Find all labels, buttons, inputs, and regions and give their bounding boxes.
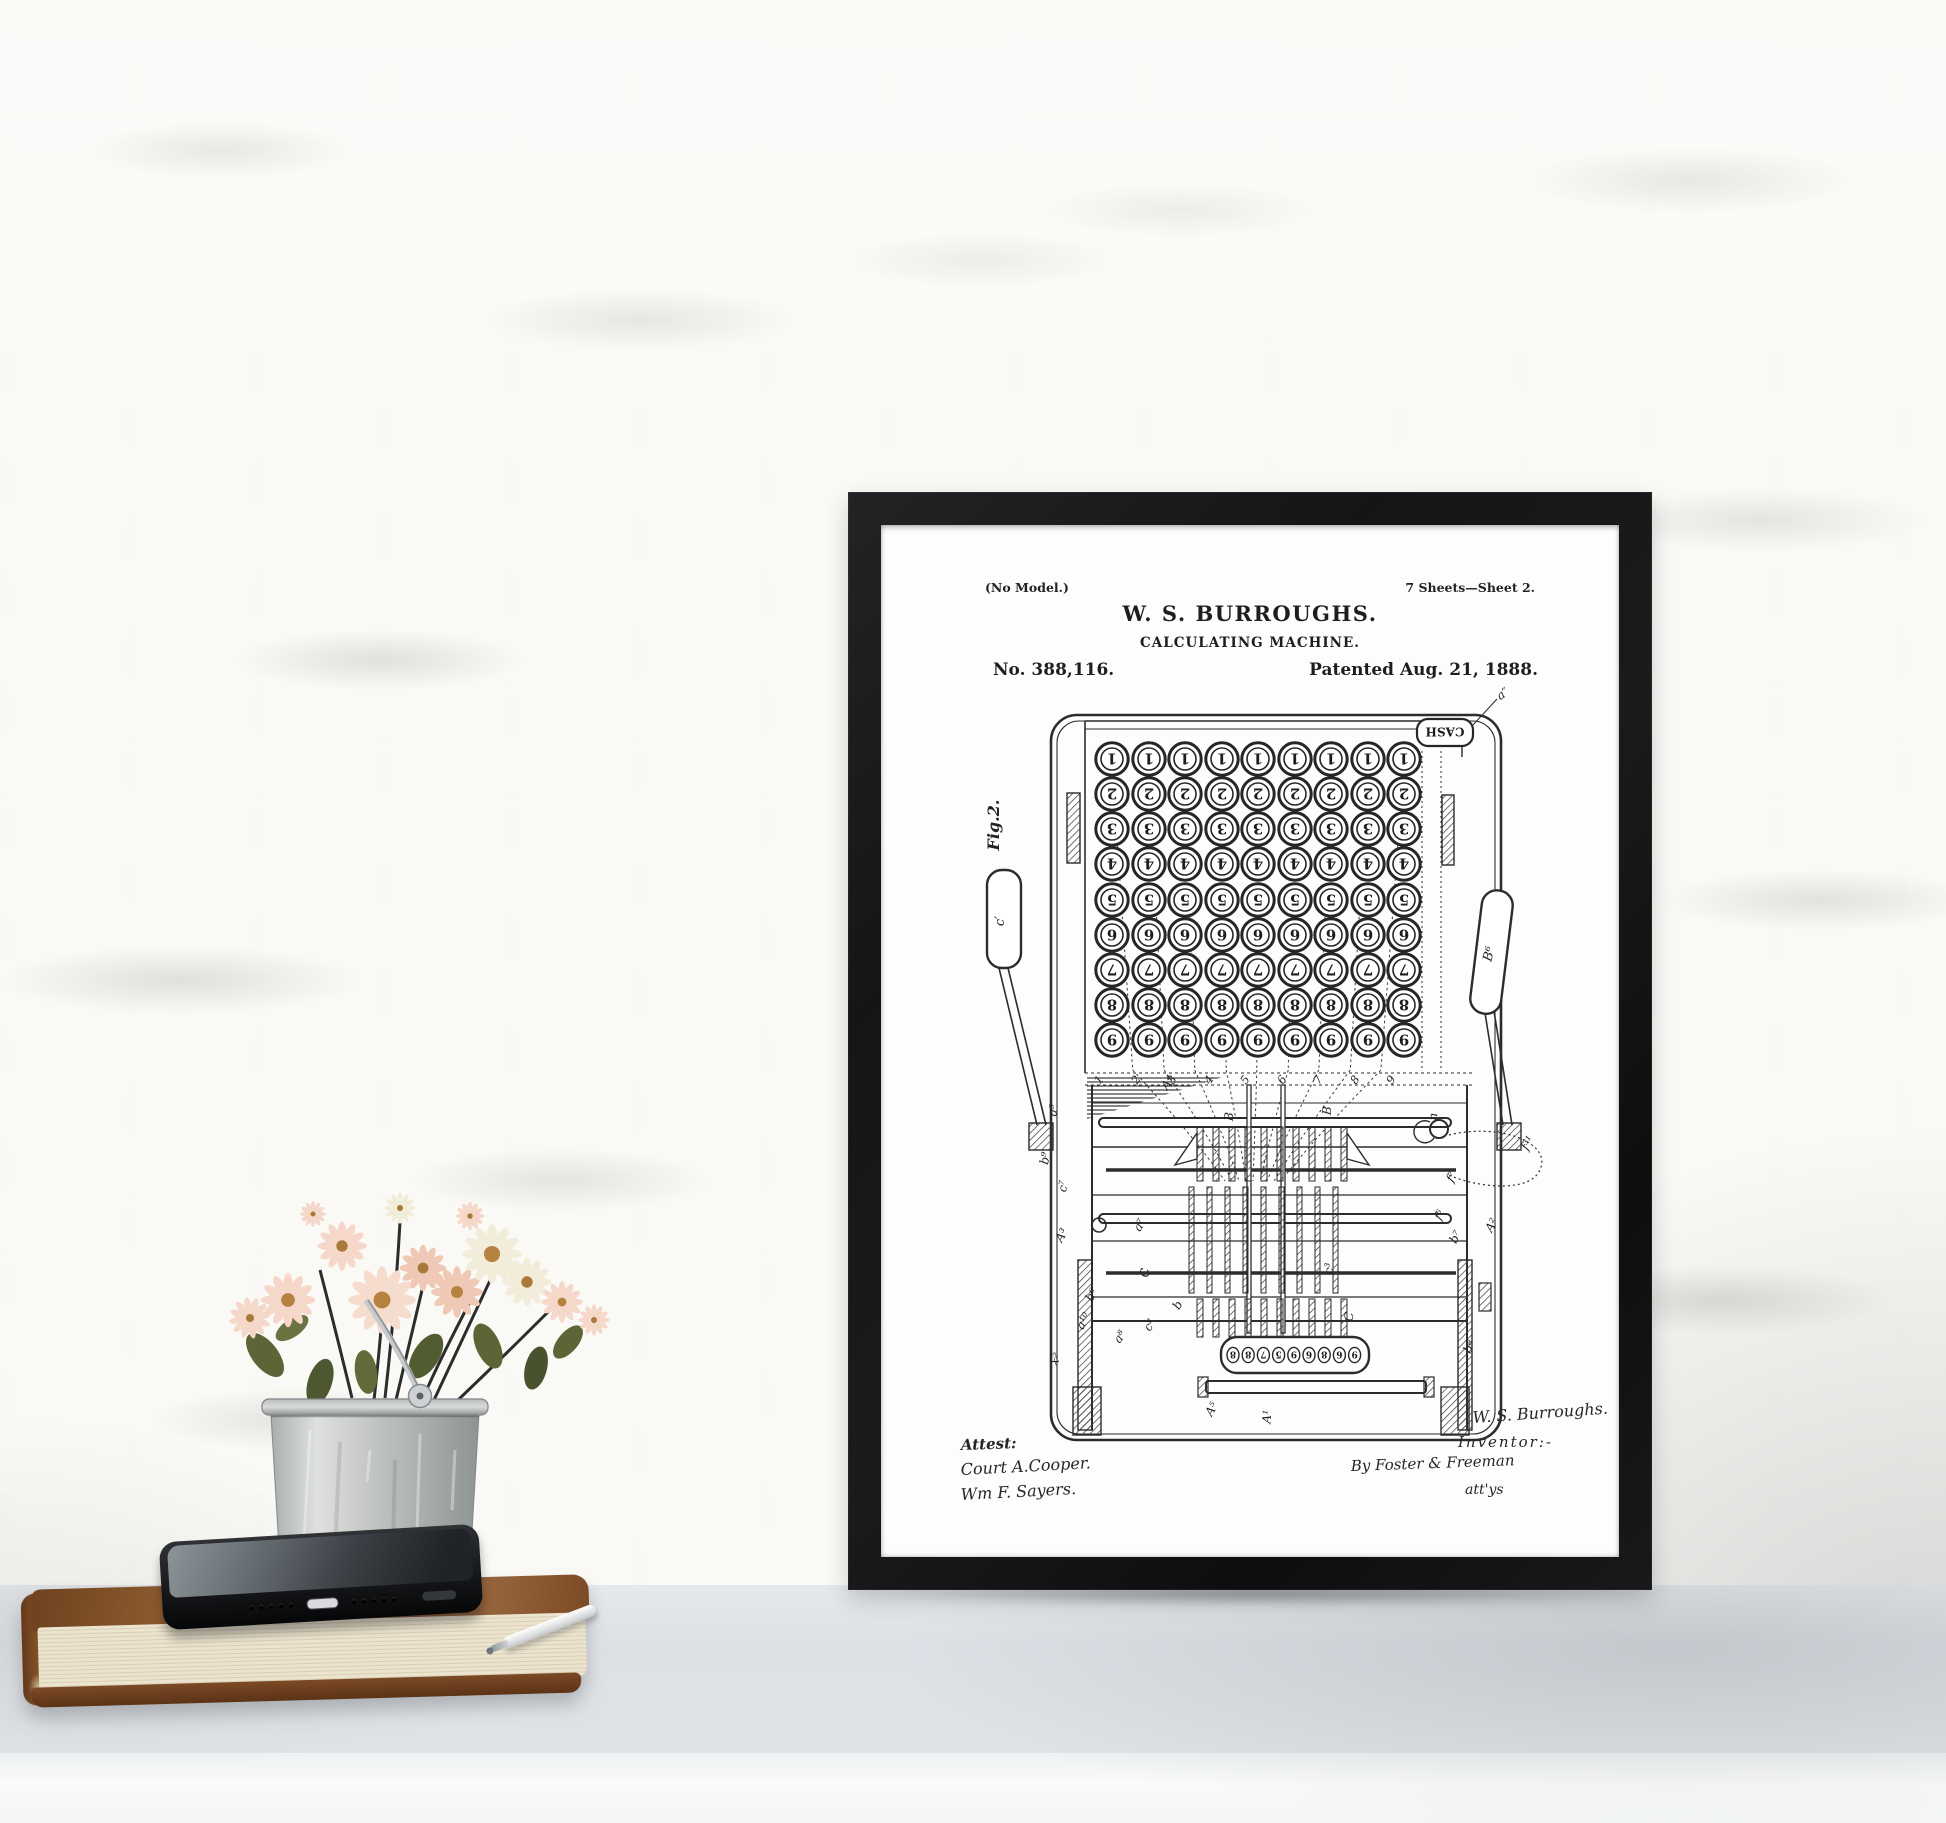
daisy-flowers: [223, 1192, 609, 1344]
key-digit: 2: [1217, 785, 1227, 803]
inventor-label: Inventor:-: [1457, 1433, 1553, 1451]
key-digit: 5: [1399, 891, 1409, 909]
key-digit: 2: [1399, 785, 1409, 803]
key-digit: 1: [1326, 750, 1336, 768]
key-digit: 4: [1363, 855, 1373, 873]
key-digit: 6: [1217, 926, 1227, 944]
key-digit: 6: [1107, 926, 1117, 944]
sheet-info: 7 Sheets—Sheet 2.: [1405, 580, 1535, 595]
key-digit: 7: [1399, 961, 1409, 979]
attorney-signature: By Foster & Freeman: [1350, 1451, 1515, 1475]
part-label: B: [1320, 1105, 1335, 1116]
comb-bar: [1309, 1127, 1315, 1181]
key-digit: 5: [1363, 891, 1373, 909]
picture-frame: (No Model.) 7 Sheets—Sheet 2. W. S. BURR…: [848, 492, 1652, 1590]
speaker-hole: [381, 1597, 386, 1602]
key-digit: 5: [1217, 891, 1227, 909]
key-digit: 5: [1326, 891, 1336, 909]
key-digit: 8: [1399, 996, 1409, 1014]
key-digit: 7: [1253, 961, 1263, 979]
left-foot: [1073, 1387, 1101, 1435]
key-digit: 9: [1363, 1031, 1373, 1049]
register-digit: 5: [1275, 1349, 1281, 1359]
part-label: B: [1222, 1111, 1237, 1122]
cash-label: CASH: [1426, 725, 1465, 739]
key-digit: 1: [1290, 750, 1300, 768]
comb-bar: [1333, 1187, 1338, 1293]
part-label: c³: [1322, 1262, 1337, 1275]
witness-signature-1: Court A.Cooper.: [960, 1453, 1091, 1479]
key-digit: 8: [1180, 996, 1190, 1014]
comb-bar: [1213, 1299, 1219, 1337]
patent-drawing: (No Model.) 7 Sheets—Sheet 2. W. S. BURR…: [881, 525, 1619, 1557]
key-digit: 2: [1180, 785, 1190, 803]
key-digit: 6: [1399, 926, 1409, 944]
key-digit: 6: [1290, 926, 1300, 944]
key-digit: 6: [1326, 926, 1336, 944]
part-label: a⁹: [1045, 1103, 1061, 1117]
register-digit: 9: [1351, 1349, 1357, 1359]
speaker-hole: [371, 1597, 376, 1602]
charging-port: [306, 1597, 339, 1610]
comb-bar: [1279, 1187, 1284, 1293]
part-label: A²: [1482, 1216, 1501, 1236]
comb-bar: [1309, 1299, 1315, 1337]
speaker-hole: [268, 1603, 273, 1608]
key-digit: 9: [1217, 1031, 1227, 1049]
key-digit: 4: [1399, 855, 1409, 873]
comb-bar: [1261, 1299, 1267, 1337]
comb-bar: [1315, 1187, 1320, 1293]
key-digit: 1: [1144, 750, 1154, 768]
register-digit: 6: [1336, 1349, 1342, 1359]
key-digit: 9: [1144, 1031, 1154, 1049]
key-digit: 4: [1290, 855, 1300, 873]
left-side-bracket: [1067, 793, 1080, 863]
register-digit: 8: [1245, 1349, 1251, 1359]
speaker-hole: [351, 1598, 356, 1603]
key-digit: 8: [1253, 996, 1263, 1014]
comb-bar: [1325, 1127, 1331, 1181]
left-lever-label: c′: [993, 916, 1008, 926]
part-label: C: [1342, 1311, 1357, 1321]
key-digit: 5: [1144, 891, 1154, 909]
key-digit: 4: [1253, 855, 1263, 873]
key-digit: 8: [1144, 996, 1154, 1014]
hatched-wedge: [1087, 1075, 1229, 1119]
key-digit: 4: [1217, 855, 1227, 873]
cash-plate: CASH: [1417, 719, 1473, 1070]
photo-scene: (No Model.) 7 Sheets—Sheet 2. W. S. BURR…: [0, 0, 1946, 1823]
no-model-note: (No Model.): [985, 580, 1069, 595]
comb-bar: [1293, 1127, 1299, 1181]
key-digit: 3: [1290, 820, 1300, 838]
comb-bar: [1229, 1299, 1235, 1337]
key-digit: 3: [1107, 820, 1117, 838]
machine-mechanism: [1029, 1073, 1542, 1435]
patent-date: Patented Aug. 21, 1888.: [1309, 660, 1538, 680]
key-digit: 4: [1180, 855, 1190, 873]
witness-signature-2: Wm F. Sayers.: [960, 1479, 1076, 1504]
patent-number: No. 388,116.: [993, 660, 1114, 680]
key-digit: 1: [1180, 750, 1190, 768]
key-digit: 8: [1107, 996, 1117, 1014]
key-digit: 3: [1363, 820, 1373, 838]
key-digit: 1: [1363, 750, 1373, 768]
key-digit: 3: [1217, 820, 1227, 838]
key-digit: 2: [1290, 785, 1300, 803]
key-digit: 2: [1144, 785, 1154, 803]
key-digit: 9: [1107, 1031, 1117, 1049]
comb-bar: [1297, 1187, 1302, 1293]
machine-title: CALCULATING MACHINE.: [1140, 635, 1360, 651]
part-label: A¹: [1259, 1409, 1274, 1425]
key-digit: 4: [1107, 855, 1117, 873]
signature-block: Attest: Court A.Cooper. Wm F. Sayers. W.…: [959, 1399, 1609, 1504]
register-digit: 6: [1306, 1349, 1312, 1359]
part-label: c⁷: [1055, 1179, 1071, 1193]
key-digit: 1: [1107, 750, 1117, 768]
comb-bar: [1243, 1187, 1248, 1293]
part-label: c²: [1141, 1316, 1159, 1333]
key-digit: 6: [1180, 926, 1190, 944]
comb-bar: [1261, 1187, 1266, 1293]
key-digit: 7: [1326, 961, 1336, 979]
inventor-title: W. S. BURROUGHS.: [1121, 601, 1377, 626]
key-digit: 1: [1217, 750, 1227, 768]
key-digit: 7: [1107, 961, 1117, 979]
key-digit: 5: [1253, 891, 1263, 909]
key-digit: 9: [1180, 1031, 1190, 1049]
key-digit: 6: [1253, 926, 1263, 944]
part-label: b: [1170, 1298, 1186, 1312]
comb-bar: [1189, 1187, 1194, 1293]
part-label: b⁷: [1446, 1228, 1464, 1246]
key-digit: 7: [1217, 961, 1227, 979]
speaker-hole: [361, 1598, 366, 1603]
key-digit: 9: [1326, 1031, 1336, 1049]
key-digit: 3: [1399, 820, 1409, 838]
comb-bar: [1277, 1299, 1283, 1337]
part-label: A⁵: [1202, 1400, 1221, 1420]
part-label: n: [1426, 1112, 1441, 1121]
key-digit: 7: [1180, 961, 1190, 979]
part-label: a⁸: [1111, 1328, 1129, 1346]
comb-bar: [1341, 1127, 1347, 1181]
column-number: 7: [1310, 1072, 1326, 1087]
speaker-hole: [249, 1605, 254, 1610]
key-digit: 2: [1253, 785, 1263, 803]
comb-bar: [1197, 1299, 1203, 1337]
patent-poster: (No Model.) 7 Sheets—Sheet 2. W. S. BURR…: [881, 525, 1619, 1557]
register-digit: 7: [1260, 1349, 1266, 1359]
speaker-hole: [278, 1603, 283, 1608]
key-digit: 6: [1363, 926, 1373, 944]
part-label: C: [1138, 1267, 1153, 1277]
speaker-hole: [391, 1596, 396, 1601]
key-digit: 5: [1290, 891, 1300, 909]
inventor-signature: W. S. Burroughs.: [1472, 1399, 1609, 1427]
key-digit: 7: [1363, 961, 1373, 979]
key-digit: 8: [1290, 996, 1300, 1014]
key-digit: 8: [1326, 996, 1336, 1014]
key-digit: 3: [1180, 820, 1190, 838]
right-foot: [1441, 1387, 1469, 1435]
key-digit: 3: [1144, 820, 1154, 838]
key-digit: 2: [1107, 785, 1117, 803]
part-label: b⁹: [1037, 1151, 1053, 1166]
key-digit: 8: [1363, 996, 1373, 1014]
key-digit: 7: [1144, 961, 1154, 979]
speaker-hole: [288, 1602, 293, 1607]
keyboard-keys: 1111111112222222223333333334444444445555…: [1096, 743, 1420, 1056]
key-digit: 1: [1399, 750, 1409, 768]
key-digit: 8: [1217, 996, 1227, 1014]
comb-bar: [1325, 1299, 1331, 1337]
right-side-bracket: [1442, 795, 1454, 865]
attest-label: Attest:: [959, 1434, 1017, 1454]
comb-bar: [1293, 1299, 1299, 1337]
key-digit: 9: [1253, 1031, 1263, 1049]
part-label: A³: [1052, 1226, 1071, 1246]
key-digit: 9: [1290, 1031, 1300, 1049]
key-digit: 4: [1144, 855, 1154, 873]
key-digit: 9: [1399, 1031, 1409, 1049]
part-label: x²: [1047, 1350, 1065, 1367]
comb-bar: [1207, 1187, 1212, 1293]
register-dials: 887596869: [1227, 1347, 1361, 1362]
key-digit: 7: [1290, 961, 1300, 979]
comb-bar: [1197, 1127, 1203, 1181]
key-digit: 1: [1253, 750, 1263, 768]
attorney-label: att'ys: [1465, 1482, 1504, 1498]
comb-bar: [1245, 1299, 1251, 1337]
key-digit: 4: [1326, 855, 1336, 873]
key-digit: 6: [1144, 926, 1154, 944]
register-digit: 8: [1321, 1349, 1327, 1359]
key-digit: 5: [1180, 891, 1190, 909]
comb-bar: [1245, 1127, 1251, 1181]
figure-label: Fig.2.: [984, 800, 1003, 852]
comb-bar: [1277, 1127, 1283, 1181]
register-digit: 8: [1230, 1349, 1236, 1359]
key-digit: 2: [1363, 785, 1373, 803]
key-digit: 5: [1107, 891, 1117, 909]
key-digit: 3: [1326, 820, 1336, 838]
comb-bar: [1225, 1187, 1230, 1293]
left-pivot: [1029, 1123, 1053, 1150]
comb-bar: [1261, 1127, 1267, 1181]
key-digit: 3: [1253, 820, 1263, 838]
comb-bar: [1229, 1127, 1235, 1181]
key-digit: 2: [1326, 785, 1336, 803]
comb-bar: [1213, 1127, 1219, 1181]
speaker-hole: [259, 1604, 264, 1609]
register-digit: 9: [1291, 1349, 1297, 1359]
